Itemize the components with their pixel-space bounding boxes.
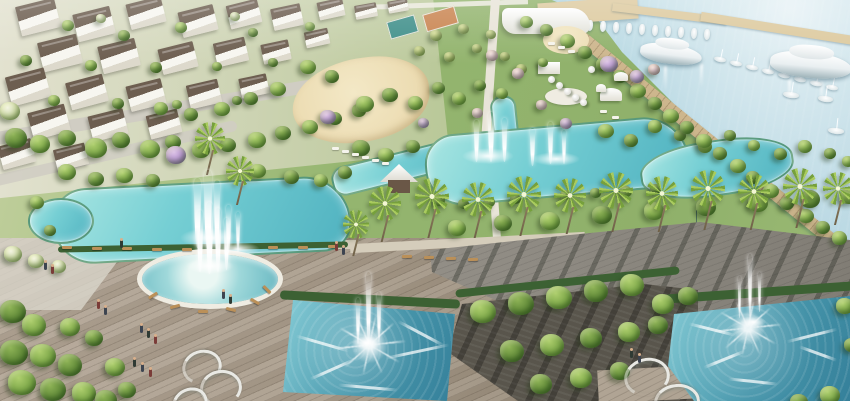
- pool-center: [283, 300, 455, 401]
- circular-fountain: [142, 254, 278, 304]
- umbrella: [588, 66, 595, 73]
- park-pavilion-body: [388, 180, 410, 193]
- sand-circle-lawn: [543, 26, 589, 54]
- lagoon-pond: [50, 174, 353, 266]
- tree: [458, 24, 469, 34]
- palm-tree: [369, 186, 401, 242]
- tree: [516, 64, 527, 74]
- tree: [748, 194, 768, 212]
- tree: [452, 92, 466, 105]
- tree: [444, 52, 455, 62]
- tree: [644, 202, 664, 220]
- tree: [696, 198, 716, 216]
- sun-lounger: [600, 110, 607, 113]
- garden-pavilion: [538, 62, 560, 74]
- tree: [472, 108, 483, 118]
- garden-terrace: [545, 88, 587, 105]
- umbrella: [548, 76, 555, 83]
- tree: [540, 212, 560, 230]
- marquee-tent: [600, 88, 622, 101]
- tree: [536, 100, 547, 110]
- tree: [500, 52, 510, 61]
- tree: [512, 68, 524, 79]
- tree: [592, 206, 612, 224]
- scene-aerial-park-marina: [0, 0, 850, 401]
- lagoon-pond-arm: [28, 198, 94, 244]
- tree: [472, 44, 482, 53]
- tree: [448, 220, 466, 236]
